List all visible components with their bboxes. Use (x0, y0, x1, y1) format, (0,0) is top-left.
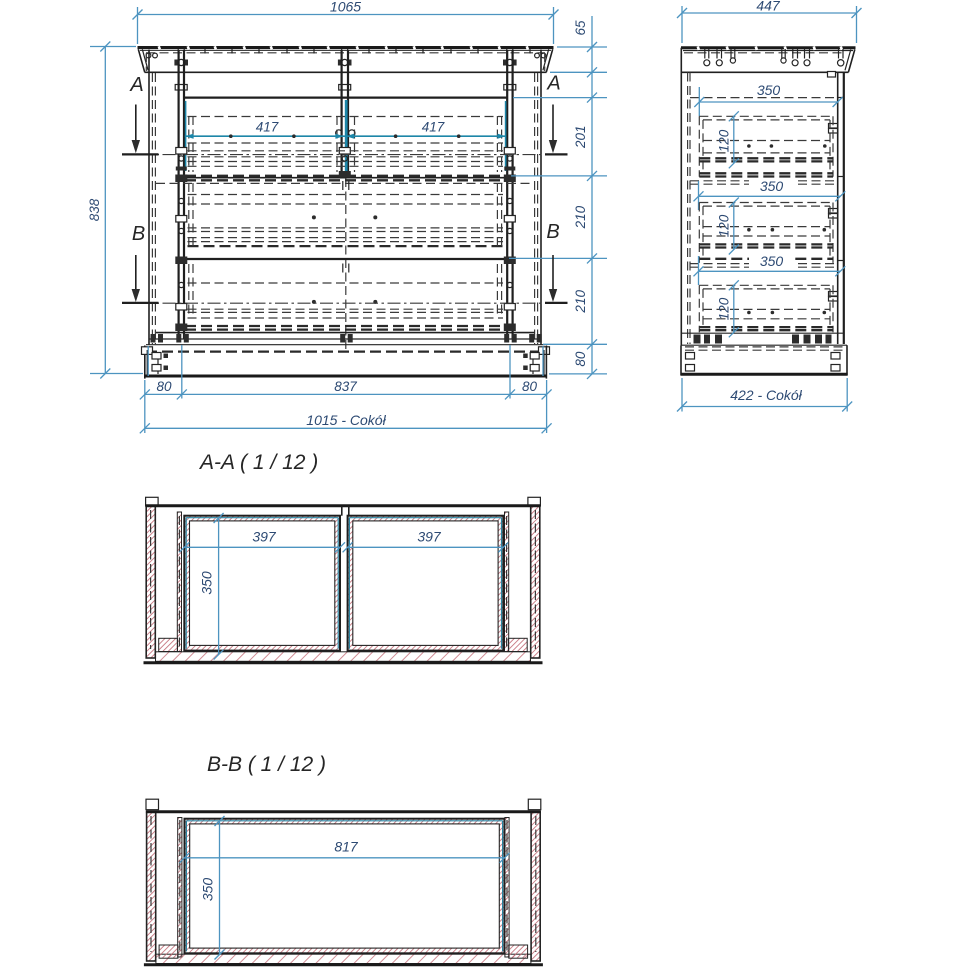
svg-text:838: 838 (87, 198, 102, 221)
svg-text:65: 65 (573, 20, 588, 36)
svg-text:A-A ( 1 / 12 ): A-A ( 1 / 12 ) (198, 451, 318, 474)
svg-text:1015 - Cokół: 1015 - Cokół (306, 412, 386, 428)
svg-text:120: 120 (717, 129, 732, 152)
svg-text:120: 120 (717, 297, 732, 320)
svg-text:1065: 1065 (330, 0, 361, 15)
svg-text:B: B (132, 223, 145, 245)
svg-text:422 - Cokół: 422 - Cokół (730, 387, 802, 403)
svg-text:417: 417 (256, 120, 279, 135)
svg-text:210: 210 (573, 290, 588, 314)
svg-text:80: 80 (522, 379, 538, 394)
svg-text:350: 350 (199, 571, 215, 595)
svg-text:417: 417 (422, 120, 445, 135)
svg-text:A: A (129, 74, 143, 96)
svg-text:80: 80 (156, 379, 172, 394)
svg-text:837: 837 (334, 379, 357, 394)
svg-text:350: 350 (760, 253, 784, 269)
svg-text:447: 447 (756, 0, 781, 14)
svg-text:80: 80 (573, 351, 588, 367)
svg-text:350: 350 (757, 82, 781, 98)
svg-text:397: 397 (417, 529, 442, 545)
svg-text:350: 350 (760, 178, 784, 194)
svg-text:817: 817 (334, 839, 359, 855)
svg-text:120: 120 (717, 214, 732, 237)
svg-text:397: 397 (252, 529, 277, 545)
svg-text:210: 210 (573, 205, 588, 229)
svg-text:201: 201 (573, 125, 588, 149)
svg-text:B: B (546, 221, 559, 243)
svg-text:A: A (546, 73, 560, 95)
svg-text:B-B ( 1 / 12 ): B-B ( 1 / 12 ) (207, 753, 326, 776)
svg-text:350: 350 (200, 878, 216, 902)
